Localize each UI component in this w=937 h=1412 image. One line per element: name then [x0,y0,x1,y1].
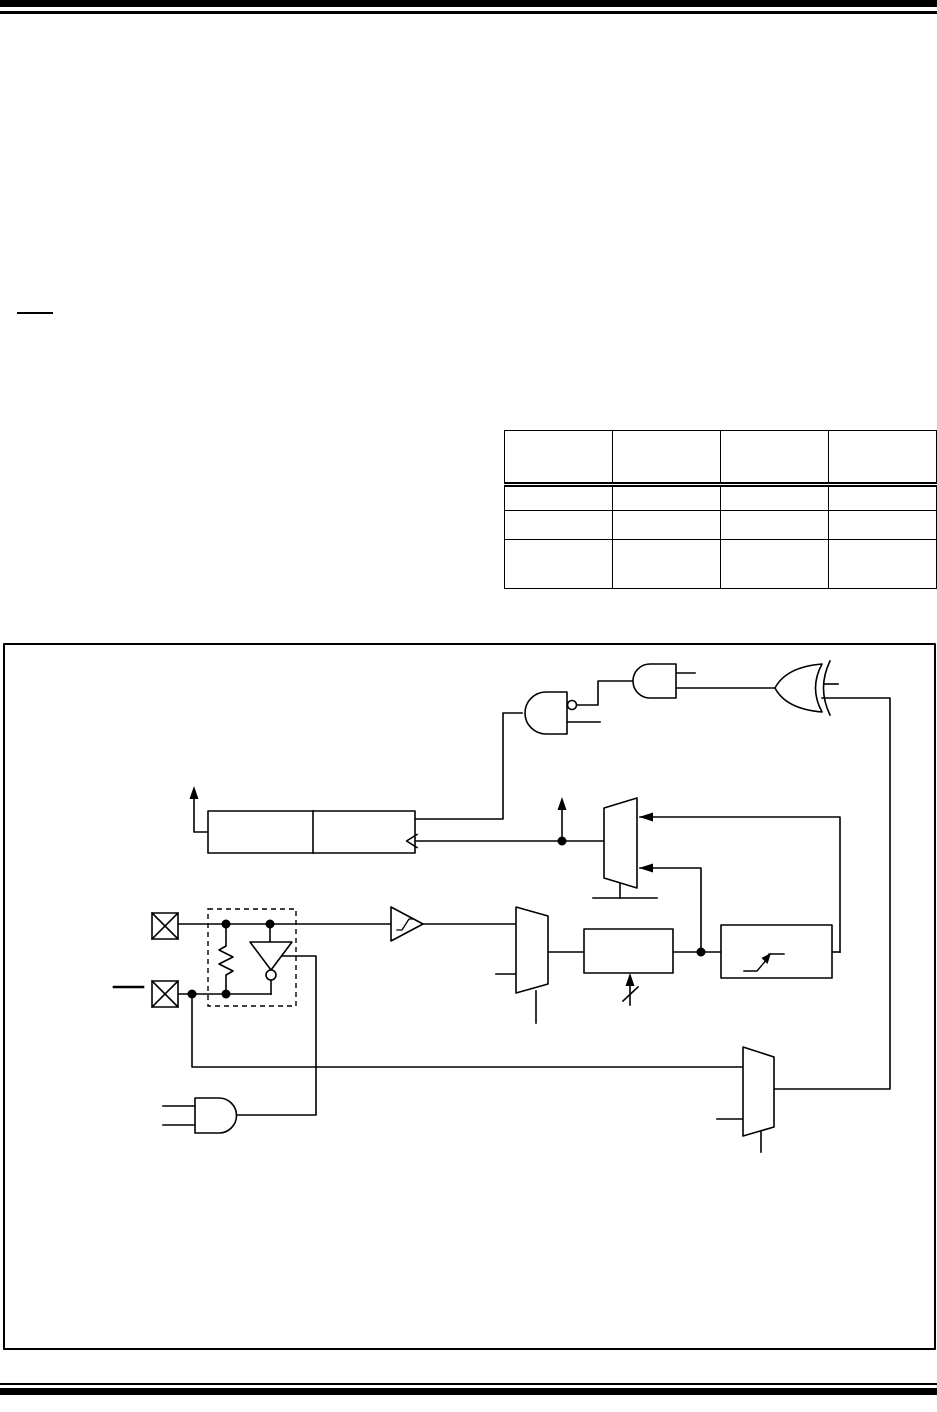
document-page [0,0,937,1412]
block-diagram [0,0,937,1412]
prescaler-box [584,929,673,973]
inverter-bubble-icon [568,701,577,710]
gate-source-mux [743,1047,774,1136]
schmitt-trigger-buffer [391,907,423,941]
footer-rule-thin [0,1383,937,1385]
branch-up-arrow [558,797,567,810]
timer-register-pair [208,811,417,853]
io-pin-top [152,913,178,939]
source-select-mux [516,907,548,993]
oscillator-inverter [250,942,292,980]
xor-gate [775,661,830,715]
inverter-bubble-icon [266,970,276,980]
overflow-arrow [190,786,199,799]
bus-width-arrow [626,973,635,986]
inverted-input-and-gate [525,692,577,734]
synchronizer-box [721,925,832,978]
enable-and-gate [195,1098,237,1133]
footer-rule-thick [0,1388,937,1395]
mux1-in2-arrow [639,864,653,873]
figure-border [4,644,935,1349]
and-gate [633,664,676,698]
io-pin-bottom [152,981,178,1007]
clock-select-mux [604,798,637,888]
mux1-in1-arrow [639,813,653,822]
